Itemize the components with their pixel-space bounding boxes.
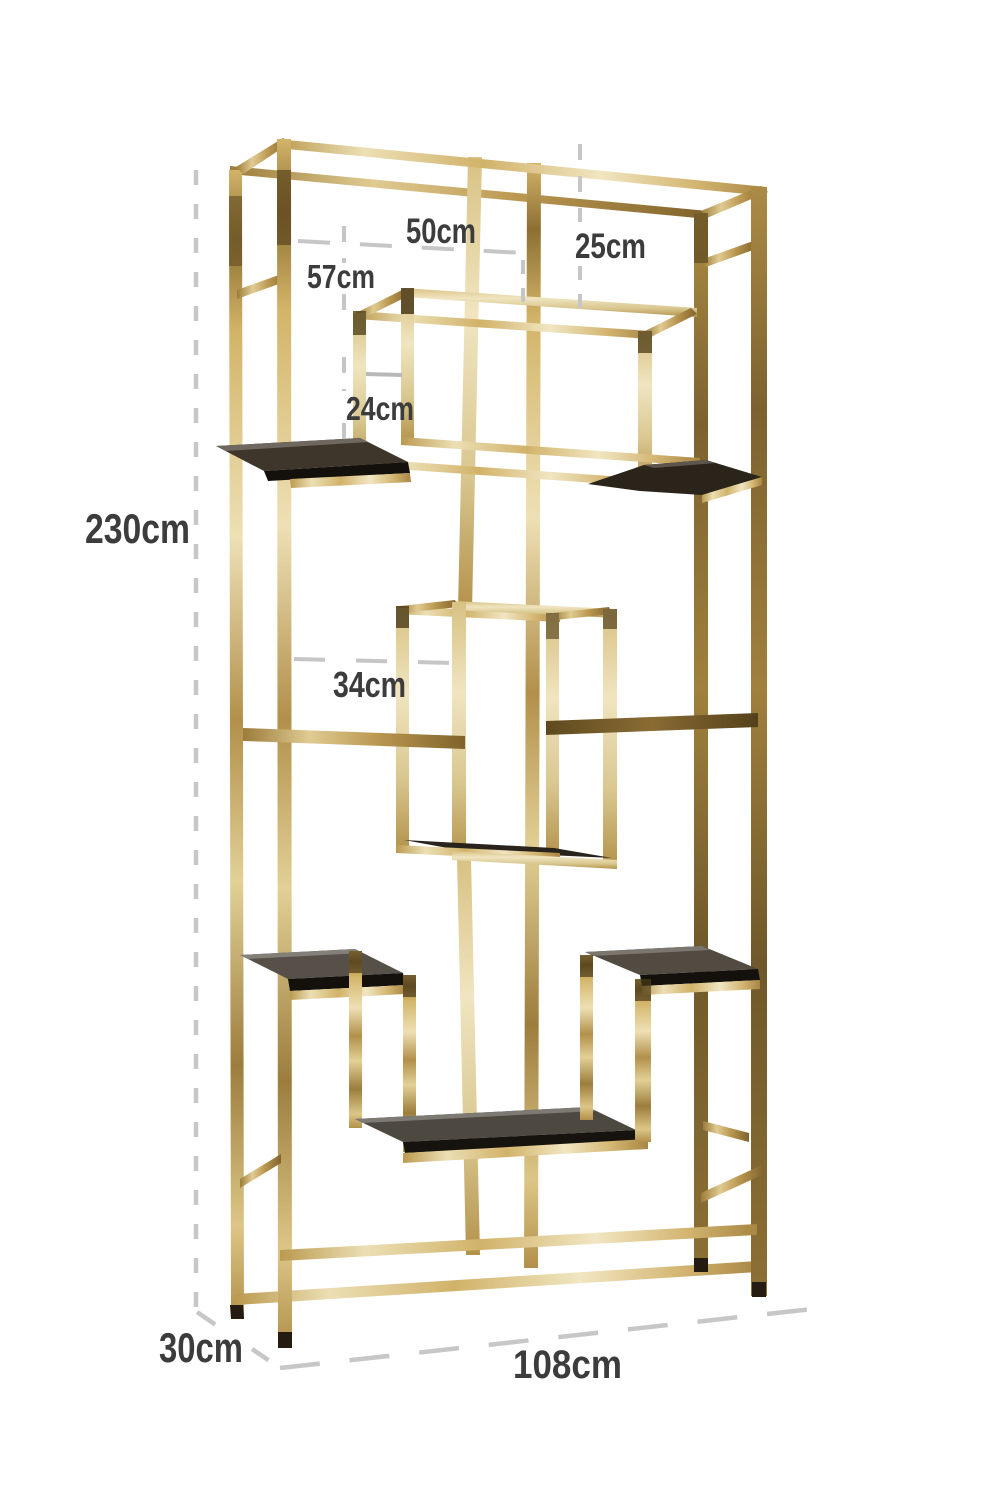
svg-text:57cm: 57cm <box>307 258 375 295</box>
svg-text:34cm: 34cm <box>333 664 406 705</box>
svg-text:230cm: 230cm <box>85 505 190 552</box>
svg-text:25cm: 25cm <box>575 227 646 266</box>
svg-text:108cm: 108cm <box>513 1343 622 1387</box>
svg-text:50cm: 50cm <box>406 212 476 251</box>
svg-text:24cm: 24cm <box>346 390 414 427</box>
svg-text:30cm: 30cm <box>159 1324 243 1371</box>
